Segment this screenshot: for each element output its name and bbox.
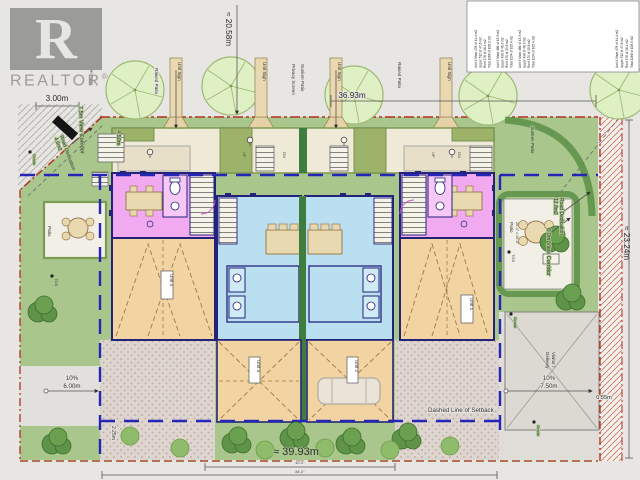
dim-23-24m: ≈ 23.24m bbox=[622, 226, 631, 260]
svg-text:Visitor /: Visitor / bbox=[551, 352, 556, 368]
road-dedication-right-area: 12.8m2 bbox=[552, 198, 558, 215]
unit-sign-label: Unit Sign bbox=[337, 62, 342, 81]
up-label: UP bbox=[242, 152, 247, 158]
realtor-wordmark: REALTOR® bbox=[10, 72, 106, 90]
area-schedule-table: Unit 1 Main 478 sf 44.4 m2 Upper 512 sf … bbox=[467, 1, 639, 72]
table-line: Upper 512 sf 47.6 m2 bbox=[620, 37, 624, 68]
table-line: Total 1134 sf 105.4 m2 bbox=[510, 36, 514, 68]
unit1-garage bbox=[400, 238, 494, 340]
entry-stairs bbox=[470, 146, 492, 171]
table-line: Unit 2 Main 466 sf 43.3 m2 bbox=[496, 30, 500, 68]
table-line: Roof 170 sf 15.8 m2 bbox=[527, 39, 531, 68]
entry-stairs bbox=[256, 146, 274, 171]
unit-sign-label: Unit Sign bbox=[447, 62, 452, 81]
table-line: Upper 498 sf 46.3 m2 bbox=[501, 37, 505, 68]
setback-note: Dashed Line of Setback bbox=[428, 407, 495, 414]
right-lane-width: 7.50m bbox=[540, 383, 557, 390]
entry-walkway bbox=[98, 128, 494, 173]
table-line: Roof 170 sf 15.8 m2 bbox=[505, 39, 509, 68]
dim-20-58m: ≈ 20.58m bbox=[224, 12, 233, 46]
raised-patio-right bbox=[404, 146, 474, 171]
unit3-main-floor bbox=[217, 196, 301, 340]
sunken-patio-label: Sunken Patio bbox=[530, 126, 535, 154]
svg-text:Grade: Grade bbox=[513, 317, 518, 329]
privacy-screen-label: Privacy Screen bbox=[291, 64, 296, 95]
svg-text:Grade: Grade bbox=[32, 154, 37, 166]
patio-label-right: Patio bbox=[509, 222, 514, 233]
table-line: Total 1134 sf 105.4 m2 bbox=[532, 36, 536, 68]
realtor-logo-mark: R bbox=[10, 8, 102, 70]
raised-patio-label: Raised Patio bbox=[154, 68, 159, 94]
driveway-apron-left bbox=[100, 340, 215, 460]
up-label: UP bbox=[431, 152, 436, 158]
road-dim-outer: 84'-0" bbox=[295, 470, 305, 474]
right-lane-slope: 10% bbox=[543, 375, 556, 382]
entry-stairs bbox=[330, 146, 348, 171]
road-dim-inner: 40'-0" bbox=[295, 461, 305, 465]
dim-2-25m: 2.25m bbox=[110, 426, 116, 440]
unit3-label: Unit 3 bbox=[256, 360, 261, 372]
unit2-main-floor bbox=[305, 196, 393, 340]
unit-sign-label: Unit Sign bbox=[262, 62, 267, 81]
left-lane bbox=[20, 366, 100, 426]
table-line: Unit 3 Main 466 sf 43.3 m2 bbox=[518, 30, 522, 68]
realtor-logo: R REALTOR® bbox=[10, 8, 106, 90]
visitor-stall bbox=[505, 312, 599, 430]
raised-patio-left bbox=[118, 146, 190, 171]
svg-text:Grade: Grade bbox=[536, 425, 541, 437]
table-line: Roof 176 sf 16.4 m2 bbox=[483, 39, 487, 68]
unit4-garage bbox=[112, 238, 215, 340]
unit2-garage bbox=[307, 340, 393, 422]
registered-mark: ® bbox=[102, 72, 110, 81]
table-line: Roof 176 sf 16.4 m2 bbox=[625, 39, 629, 68]
table-line: Unit 4 Main 478 sf 44.4 m2 bbox=[615, 30, 619, 68]
raised-patio-label: Raised Patio bbox=[397, 62, 402, 88]
svg-text:TOS: TOS bbox=[511, 254, 516, 262]
dim-39-93m: ≈ 39.93m bbox=[273, 446, 319, 458]
unit4-main-floor bbox=[112, 173, 215, 238]
unit2-label: Unit 2 bbox=[354, 360, 359, 372]
dn-label: DN bbox=[97, 176, 102, 182]
table-line: Total 1166 sf 108.3 m2 bbox=[630, 36, 634, 68]
unit3-garage bbox=[217, 340, 301, 422]
left-lane-width: 6.00m bbox=[63, 383, 80, 390]
table-line: Total 1166 sf 108.3 m2 bbox=[488, 36, 492, 68]
unit-sign-label: Unit Sign bbox=[177, 62, 182, 81]
unit4-label: Unit 4 bbox=[169, 274, 174, 286]
svg-text:Delivery: Delivery bbox=[545, 352, 550, 369]
left-lane-slope: 10% bbox=[66, 375, 79, 382]
dn-label: DN bbox=[457, 152, 462, 158]
visitor-delivery-label: Visitor / Delivery bbox=[545, 352, 556, 369]
realtor-logo-letter: R bbox=[35, 10, 77, 68]
unit1-main-floor bbox=[400, 173, 494, 238]
dn-label: DN bbox=[282, 152, 287, 158]
dim-36-93m: 36.93m bbox=[338, 91, 365, 100]
patio-label-left: Patio bbox=[47, 226, 52, 237]
dim-3m: 3.00m bbox=[46, 94, 69, 103]
table-line: Upper 498 sf 46.3 m2 bbox=[523, 37, 527, 68]
unit1-label: Unit 1 bbox=[469, 298, 474, 310]
table-line: Unit 1 Main 478 sf 44.4 m2 bbox=[474, 30, 478, 68]
svg-text:TOS: TOS bbox=[54, 278, 59, 286]
site-plan-canvas: Unit 1 Main 478 sf 44.4 m2 Upper 512 sf … bbox=[0, 0, 640, 480]
dim-4-50m: 4.50m bbox=[115, 130, 121, 146]
table-line: Upper 512 sf 47.6 m2 bbox=[479, 37, 483, 68]
patio-size-right: 20'-4" x 10'-0" bbox=[515, 222, 519, 245]
sunken-patio-label: Sunken Patio bbox=[300, 64, 305, 92]
dim-0-55m: 0.55m bbox=[596, 395, 612, 401]
view-corridor-right-label: 6.0m View Corridor bbox=[545, 228, 551, 276]
